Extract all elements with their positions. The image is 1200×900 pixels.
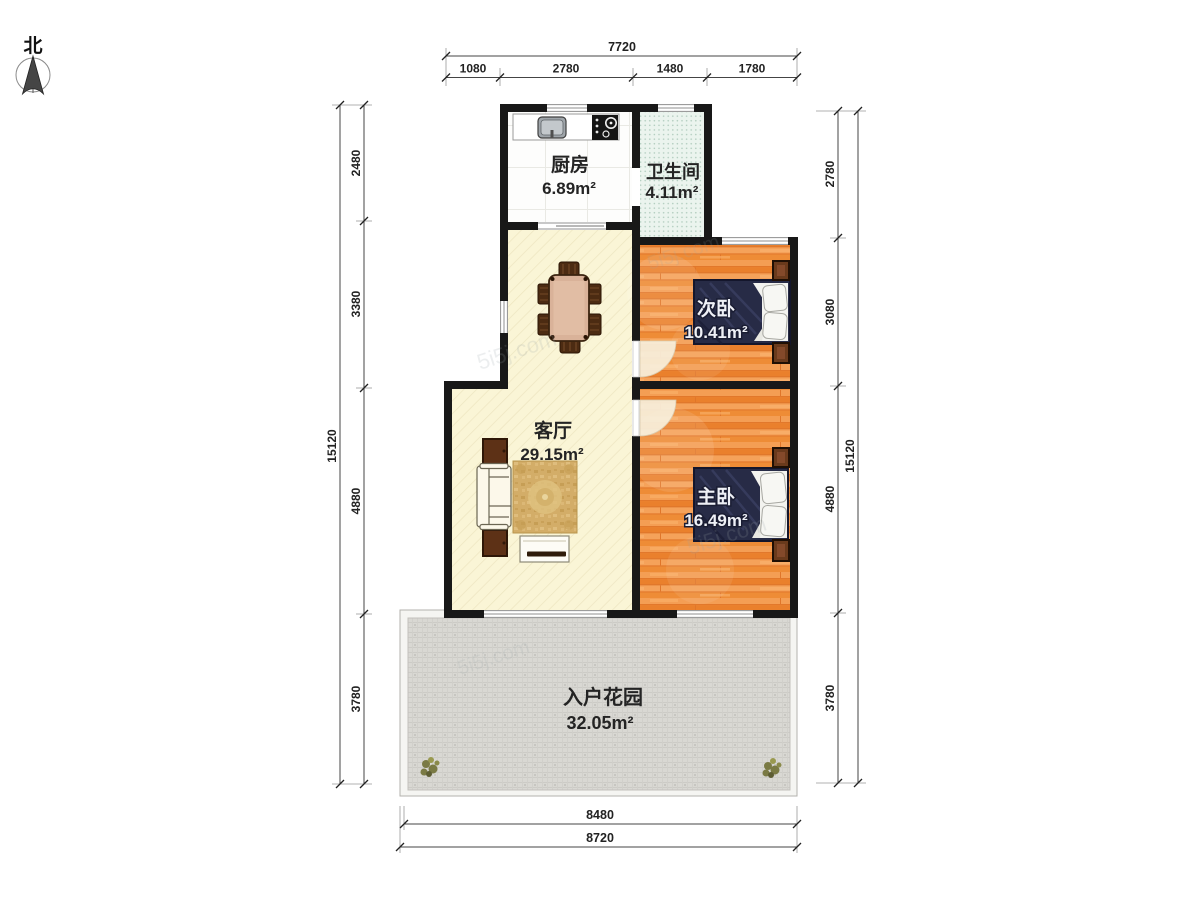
svg-text:1080: 1080 bbox=[460, 62, 487, 76]
svg-text:16.49m²: 16.49m² bbox=[684, 511, 748, 530]
svg-text:8480: 8480 bbox=[586, 808, 614, 822]
svg-text:6.89m²: 6.89m² bbox=[542, 179, 596, 198]
svg-text:3080: 3080 bbox=[823, 298, 837, 325]
svg-text:7720: 7720 bbox=[608, 40, 636, 54]
svg-text:29.15m²: 29.15m² bbox=[520, 445, 584, 464]
svg-text:3780: 3780 bbox=[349, 685, 363, 712]
svg-text:厨房: 厨房 bbox=[551, 153, 589, 176]
svg-text:主卧: 主卧 bbox=[697, 486, 735, 508]
svg-text:2780: 2780 bbox=[823, 160, 837, 187]
svg-text:2780: 2780 bbox=[553, 62, 580, 76]
svg-text:1480: 1480 bbox=[657, 62, 684, 76]
svg-text:3780: 3780 bbox=[823, 684, 837, 711]
svg-text:3380: 3380 bbox=[349, 290, 363, 317]
svg-text:10.41m²: 10.41m² bbox=[684, 323, 748, 342]
svg-text:北: 北 bbox=[23, 35, 42, 57]
svg-text:15120: 15120 bbox=[325, 429, 339, 463]
svg-text:4880: 4880 bbox=[349, 487, 363, 514]
svg-text:4880: 4880 bbox=[823, 485, 837, 512]
svg-text:2480: 2480 bbox=[349, 149, 363, 176]
svg-text:客厅: 客厅 bbox=[534, 419, 572, 442]
svg-text:入户花园: 入户花园 bbox=[563, 685, 643, 709]
svg-text:8720: 8720 bbox=[586, 831, 614, 845]
svg-text:卫生间: 卫生间 bbox=[646, 161, 700, 182]
svg-text:15120: 15120 bbox=[843, 439, 857, 473]
svg-text:32.05m²: 32.05m² bbox=[566, 713, 633, 733]
svg-text:1780: 1780 bbox=[739, 62, 766, 76]
svg-text:次卧: 次卧 bbox=[697, 297, 735, 320]
svg-text:4.11m²: 4.11m² bbox=[646, 183, 699, 202]
